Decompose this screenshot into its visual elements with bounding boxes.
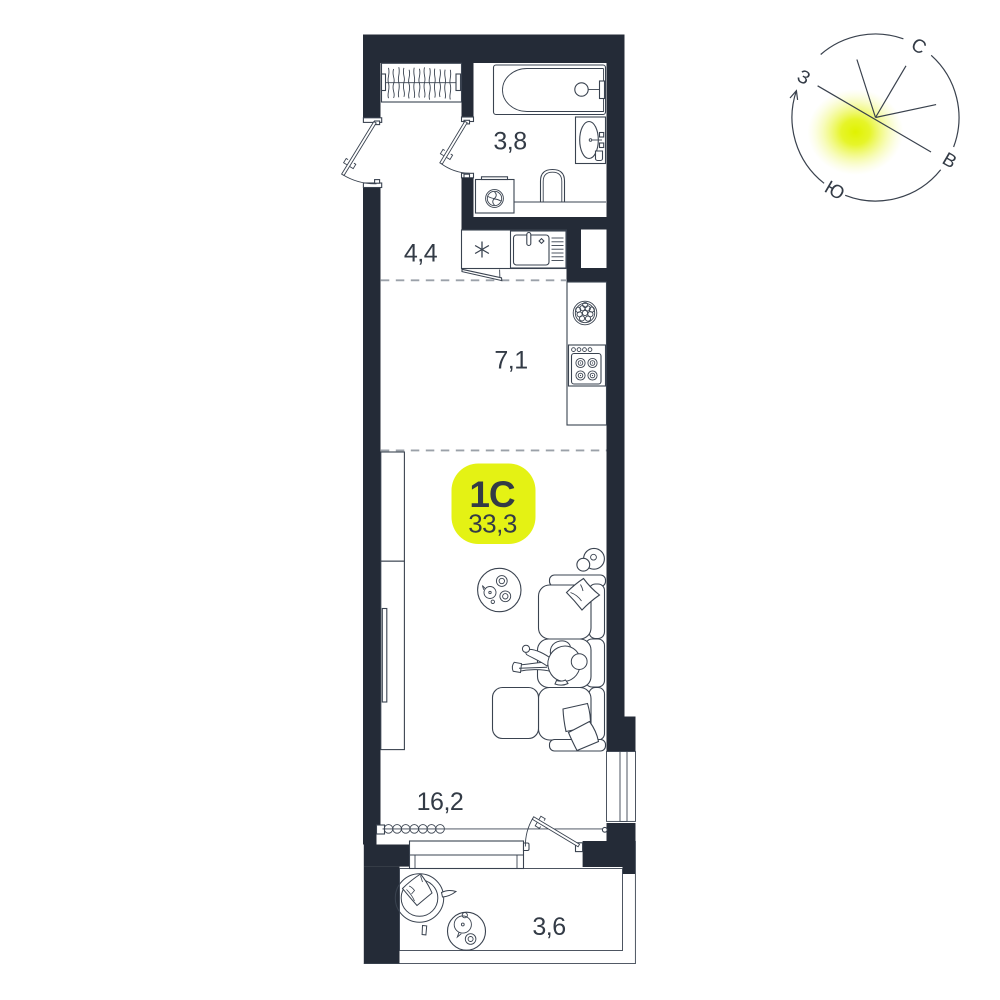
svg-text:3,8: 3,8	[493, 128, 526, 156]
svg-text:3,6: 3,6	[532, 913, 565, 941]
svg-text:7,1: 7,1	[494, 347, 527, 375]
svg-text:33,3: 33,3	[468, 509, 517, 539]
svg-text:16,2: 16,2	[417, 788, 464, 816]
svg-text:4,4: 4,4	[404, 240, 438, 268]
